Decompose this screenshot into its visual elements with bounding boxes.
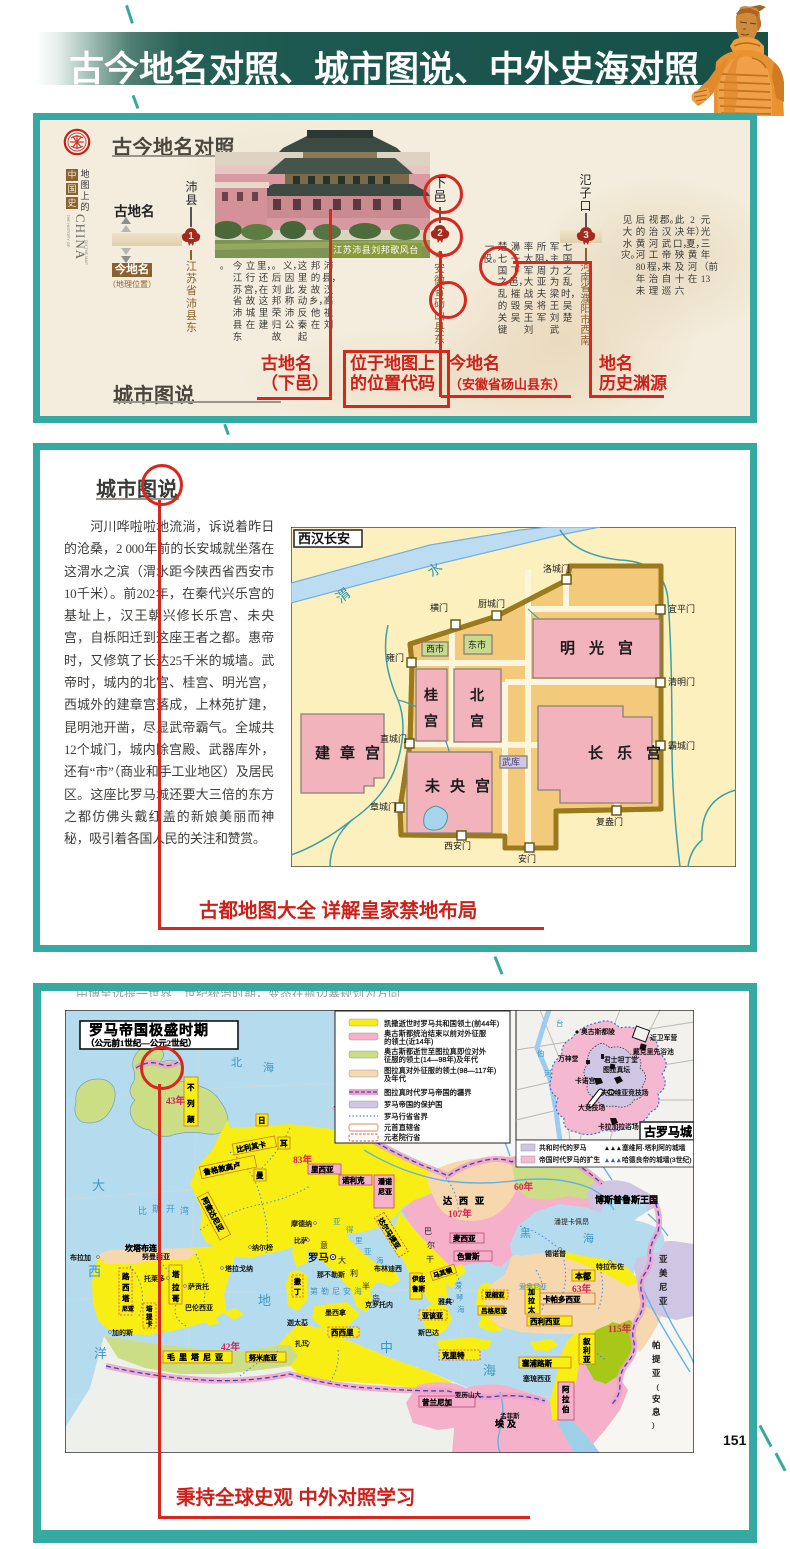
svg-text:章城门: 章城门	[370, 801, 397, 812]
svg-text:鲁斯: 鲁斯	[411, 1284, 426, 1293]
svg-text:）: ）	[652, 1422, 659, 1430]
svg-text:河: 河	[544, 1069, 552, 1078]
svg-text:海: 海	[483, 1363, 496, 1378]
svg-text:里: 里	[355, 1236, 363, 1245]
svg-text:▲▲▲: ▲▲▲	[604, 1146, 622, 1152]
svg-text:征服的领土(14—98年)及年代: 征服的领土(14—98年)及年代	[384, 1055, 479, 1064]
svg-text:图拉真时代罗马帝国的疆界: 图拉真时代罗马帝国的疆界	[384, 1088, 472, 1097]
svg-text:尔: 尔	[427, 1240, 435, 1250]
svg-text:42年: 42年	[221, 1341, 241, 1353]
svg-text:巴: 巴	[424, 1227, 432, 1236]
svg-text:萨贡托: 萨贡托	[188, 1282, 209, 1291]
svg-text:海: 海	[457, 1304, 465, 1314]
svg-text:洋: 洋	[94, 1346, 107, 1361]
svg-text:及年代: 及年代	[384, 1074, 407, 1083]
svg-text:息: 息	[652, 1407, 661, 1417]
svg-text:万神堂: 万神堂	[558, 1054, 579, 1063]
svg-text:潘提卡佩昂: 潘提卡佩昂	[554, 1217, 589, 1226]
svg-text:布林迪西: 布林迪西	[374, 1264, 402, 1273]
svg-text:洛城门: 洛城门	[543, 563, 570, 574]
svg-text:元老院行省: 元老院行省	[384, 1133, 420, 1142]
svg-text:宜平门: 宜平门	[668, 603, 695, 614]
svg-text:诺利克: 诺利克	[342, 1175, 365, 1185]
svg-text:摩德纳: 摩德纳	[291, 1219, 312, 1228]
svg-text:不: 不	[187, 1083, 195, 1092]
svg-text:雍门: 雍门	[386, 652, 404, 663]
svg-text:意: 意	[320, 1240, 328, 1250]
svg-text:元首直辖省: 元首直辖省	[384, 1123, 420, 1132]
svg-text:本都: 本都	[574, 1271, 591, 1281]
svg-text:努米底亚: 努米底亚	[249, 1353, 277, 1362]
svg-text:卡拉加拉浴场: 卡拉加拉浴场	[598, 1122, 639, 1131]
svg-text:亚: 亚	[652, 1368, 661, 1378]
svg-text:宫: 宫	[424, 713, 438, 730]
svg-text:罗马: 罗马	[308, 1252, 329, 1264]
svg-text:那不勒斯: 那不勒斯	[317, 1270, 345, 1279]
svg-text:颠: 颠	[186, 1114, 195, 1124]
svg-text:纳尔榜: 纳尔榜	[252, 1243, 273, 1252]
svg-text:比: 比	[138, 1205, 147, 1216]
svg-text:得: 得	[346, 1224, 354, 1234]
svg-text:伯: 伯	[537, 1048, 545, 1058]
svg-text:霸城门: 霸城门	[668, 740, 695, 751]
svg-text:撒: 撒	[294, 1277, 302, 1286]
svg-text:巴伦西亚: 巴伦西亚	[185, 1303, 213, 1312]
svg-text:拉: 拉	[172, 1282, 180, 1292]
svg-text:厨城门: 厨城门	[478, 598, 505, 609]
svg-text:凯撒逝世时罗马共和国领土(前44年): 凯撒逝世时罗马共和国领土(前44年)	[384, 1019, 499, 1028]
svg-text:（: （	[652, 1384, 659, 1392]
svg-text:西: 西	[88, 1264, 101, 1279]
svg-text:利: 利	[350, 1268, 358, 1278]
svg-text:安门: 安门	[518, 853, 536, 864]
svg-text:爱奥尼亚: 爱奥尼亚	[519, 1282, 547, 1291]
svg-text:清明门: 清明门	[668, 676, 695, 687]
svg-text:提: 提	[652, 1354, 661, 1364]
svg-text:地: 地	[258, 1293, 271, 1308]
svg-text:毛里塔尼亚: 毛里塔尼亚	[167, 1352, 227, 1362]
svg-text:近卫军营: 近卫军营	[650, 1033, 677, 1042]
svg-text:帝国时代罗马的扩生: 帝国时代罗马的扩生	[539, 1155, 600, 1164]
svg-text:耳: 耳	[280, 1139, 288, 1148]
svg-text:亚该亚: 亚该亚	[422, 1311, 443, 1320]
svg-text:明光宫: 明光宫	[560, 639, 647, 657]
svg-text:卡: 卡	[146, 1319, 153, 1328]
svg-text:北: 北	[470, 688, 484, 704]
svg-text:海: 海	[376, 1255, 384, 1265]
svg-text:伊庇: 伊庇	[411, 1274, 426, 1283]
svg-text:努曼西亚: 努曼西亚	[142, 1252, 170, 1261]
svg-text:湾: 湾	[180, 1205, 189, 1216]
svg-text:太: 太	[528, 1305, 536, 1314]
svg-text:115年: 115年	[608, 1323, 632, 1335]
svg-text:孟菲斯: 孟菲斯	[500, 1411, 520, 1420]
svg-text:雅典: 雅典	[438, 1297, 452, 1306]
svg-text:西汉长安: 西汉长安	[298, 531, 350, 546]
svg-text:第勒尼安海: 第勒尼安海	[310, 1286, 365, 1296]
svg-text:夫拉维亚竞技场: 夫拉维亚竞技场	[601, 1088, 649, 1097]
svg-text:古罗马城: 古罗马城	[644, 1124, 692, 1139]
svg-text:坎塔布连: 坎塔布连	[125, 1243, 158, 1253]
svg-text:戴克里先浴池: 戴克里先浴池	[633, 1047, 674, 1056]
svg-text:台: 台	[556, 1018, 564, 1028]
svg-text:武库: 武库	[502, 756, 520, 767]
svg-text:罗马帝国极盛时期: 罗马帝国极盛时期	[89, 1022, 209, 1039]
svg-text:建章宫: 建章宫	[315, 744, 390, 762]
svg-text:▲▲▲: ▲▲▲	[604, 1158, 622, 1164]
svg-text:塞琉西亚: 塞琉西亚	[523, 1374, 551, 1383]
svg-text:列: 列	[187, 1098, 195, 1108]
svg-text:培: 培	[146, 1304, 153, 1313]
svg-text:83年: 83年	[293, 1154, 313, 1166]
svg-text:哥: 哥	[172, 1294, 180, 1303]
svg-text:罗马行省省界: 罗马行省省界	[384, 1112, 428, 1121]
svg-text:安: 安	[652, 1394, 661, 1404]
svg-text:提: 提	[146, 1312, 153, 1321]
svg-text:西西里: 西西里	[331, 1328, 354, 1337]
svg-text:复盎门: 复盎门	[596, 816, 623, 827]
svg-text:博斯普鲁斯王国: 博斯普鲁斯王国	[595, 1194, 658, 1205]
svg-text:北: 北	[231, 1056, 242, 1069]
svg-text:哈德良帝的城墙(3世纪): 哈德良帝的城墙(3世纪)	[622, 1155, 691, 1164]
svg-text:亚: 亚	[364, 1247, 372, 1256]
svg-text:路: 路	[122, 1271, 130, 1281]
svg-text:托莱多: 托莱多	[144, 1274, 165, 1283]
svg-text:克罗托内: 克罗托内	[365, 1300, 393, 1309]
svg-text:107年: 107年	[448, 1208, 472, 1220]
svg-text:罗马帝国的保护国: 罗马帝国的保护国	[384, 1100, 442, 1109]
svg-text:宫: 宫	[470, 713, 484, 730]
svg-text:1: 1	[188, 231, 194, 242]
svg-text:色雷斯: 色雷斯	[457, 1251, 480, 1261]
svg-text:大: 大	[338, 1255, 346, 1265]
svg-text:君士坦丁堂: 君士坦丁堂	[604, 1055, 638, 1064]
svg-text:大: 大	[92, 1178, 105, 1193]
svg-text:未央宫: 未央宫	[424, 777, 500, 795]
svg-text:奥古斯都陵: 奥古斯都陵	[581, 1027, 615, 1036]
svg-text:帕: 帕	[652, 1340, 661, 1350]
svg-text:爱: 爱	[455, 1281, 463, 1290]
svg-text:桂: 桂	[423, 687, 438, 704]
svg-text:3: 3	[583, 230, 589, 241]
svg-text:63年: 63年	[572, 1283, 592, 1295]
svg-text:达西亚: 达西亚	[443, 1195, 491, 1206]
svg-text:墨西拿: 墨西拿	[325, 1308, 346, 1317]
svg-text:塞浦路斯: 塞浦路斯	[521, 1358, 552, 1368]
svg-text:琴: 琴	[456, 1293, 464, 1302]
svg-text:西市: 西市	[426, 643, 444, 654]
svg-text:大竞技场: 大竞技场	[578, 1103, 605, 1112]
svg-text:利: 利	[582, 1345, 591, 1355]
svg-text:尼亚: 尼亚	[122, 1305, 134, 1313]
svg-text:横门: 横门	[430, 602, 448, 613]
svg-text:吕格尼亚: 吕格尼亚	[481, 1306, 508, 1315]
svg-text:亚: 亚	[583, 1355, 591, 1364]
svg-text:塞维阿·塔利阿的城墙: 塞维阿·塔利阿的城墙	[622, 1143, 686, 1152]
svg-text:中: 中	[380, 1340, 393, 1355]
svg-text:卡诺宫: 卡诺宫	[575, 1076, 596, 1085]
svg-text:美: 美	[659, 1268, 668, 1278]
svg-text:伯: 伯	[562, 1404, 570, 1414]
svg-text:亚: 亚	[333, 1217, 341, 1226]
svg-text:海: 海	[583, 1231, 594, 1245]
svg-text:尼亚: 尼亚	[378, 1187, 392, 1196]
svg-text:拉: 拉	[562, 1394, 570, 1404]
svg-text:干: 干	[426, 1255, 434, 1264]
svg-text:开: 开	[166, 1204, 175, 1214]
svg-text:（公元前1世纪—公元2世纪）: （公元前1世纪—公元2世纪）	[86, 1038, 197, 1048]
svg-text:叙: 叙	[583, 1336, 591, 1346]
svg-text:西: 西	[122, 1283, 130, 1292]
svg-text:尼: 尼	[659, 1282, 668, 1292]
svg-text:共和时代的罗马: 共和时代的罗马	[539, 1143, 587, 1152]
svg-text:亚: 亚	[659, 1254, 668, 1264]
svg-text:直城门: 直城门	[380, 733, 407, 744]
svg-text:塔: 塔	[122, 1293, 130, 1303]
svg-text:亚细亚: 亚细亚	[485, 1290, 505, 1299]
svg-text:塔拉戈纳: 塔拉戈纳	[225, 1264, 253, 1273]
svg-text:里西亚: 里西亚	[311, 1165, 334, 1174]
svg-text:43年: 43年	[166, 1095, 186, 1107]
svg-text:日: 日	[258, 1116, 266, 1125]
svg-text:阿: 阿	[562, 1385, 570, 1394]
svg-text:昔兰尼加: 昔兰尼加	[422, 1397, 452, 1407]
svg-text:布拉加: 布拉加	[70, 1253, 91, 1262]
svg-text:西利西亚: 西利西亚	[530, 1316, 560, 1326]
svg-text:海: 海	[263, 1060, 274, 1074]
svg-text:东市: 东市	[468, 639, 486, 650]
svg-text:麦西亚: 麦西亚	[453, 1233, 476, 1243]
svg-text:亚历山大: 亚历山大	[455, 1390, 482, 1399]
svg-text:加的斯: 加的斯	[112, 1328, 133, 1337]
svg-text:塔: 塔	[172, 1269, 180, 1279]
svg-text:卡帕多西亚: 卡帕多西亚	[543, 1294, 581, 1304]
svg-text:克里特: 克里特	[442, 1350, 465, 1360]
svg-text:斯巴达: 斯巴达	[418, 1328, 439, 1337]
svg-text:亚: 亚	[659, 1296, 668, 1306]
svg-text:的领土(近14年): 的领土(近14年)	[384, 1037, 433, 1046]
svg-text:拉: 拉	[528, 1296, 535, 1305]
svg-text:西安门: 西安门	[444, 840, 471, 851]
svg-text:比萨: 比萨	[294, 1236, 308, 1245]
svg-text:潘诺: 潘诺	[378, 1177, 392, 1186]
svg-text:黑: 黑	[520, 1227, 531, 1240]
svg-text:图拉真坛: 图拉真坛	[603, 1065, 630, 1074]
svg-text:丁: 丁	[294, 1288, 301, 1296]
svg-text:60年: 60年	[514, 1181, 534, 1193]
svg-text:长乐宫: 长乐宫	[588, 744, 675, 762]
svg-text:锡诺普: 锡诺普	[545, 1249, 566, 1258]
svg-text:曼: 曼	[256, 1170, 264, 1180]
